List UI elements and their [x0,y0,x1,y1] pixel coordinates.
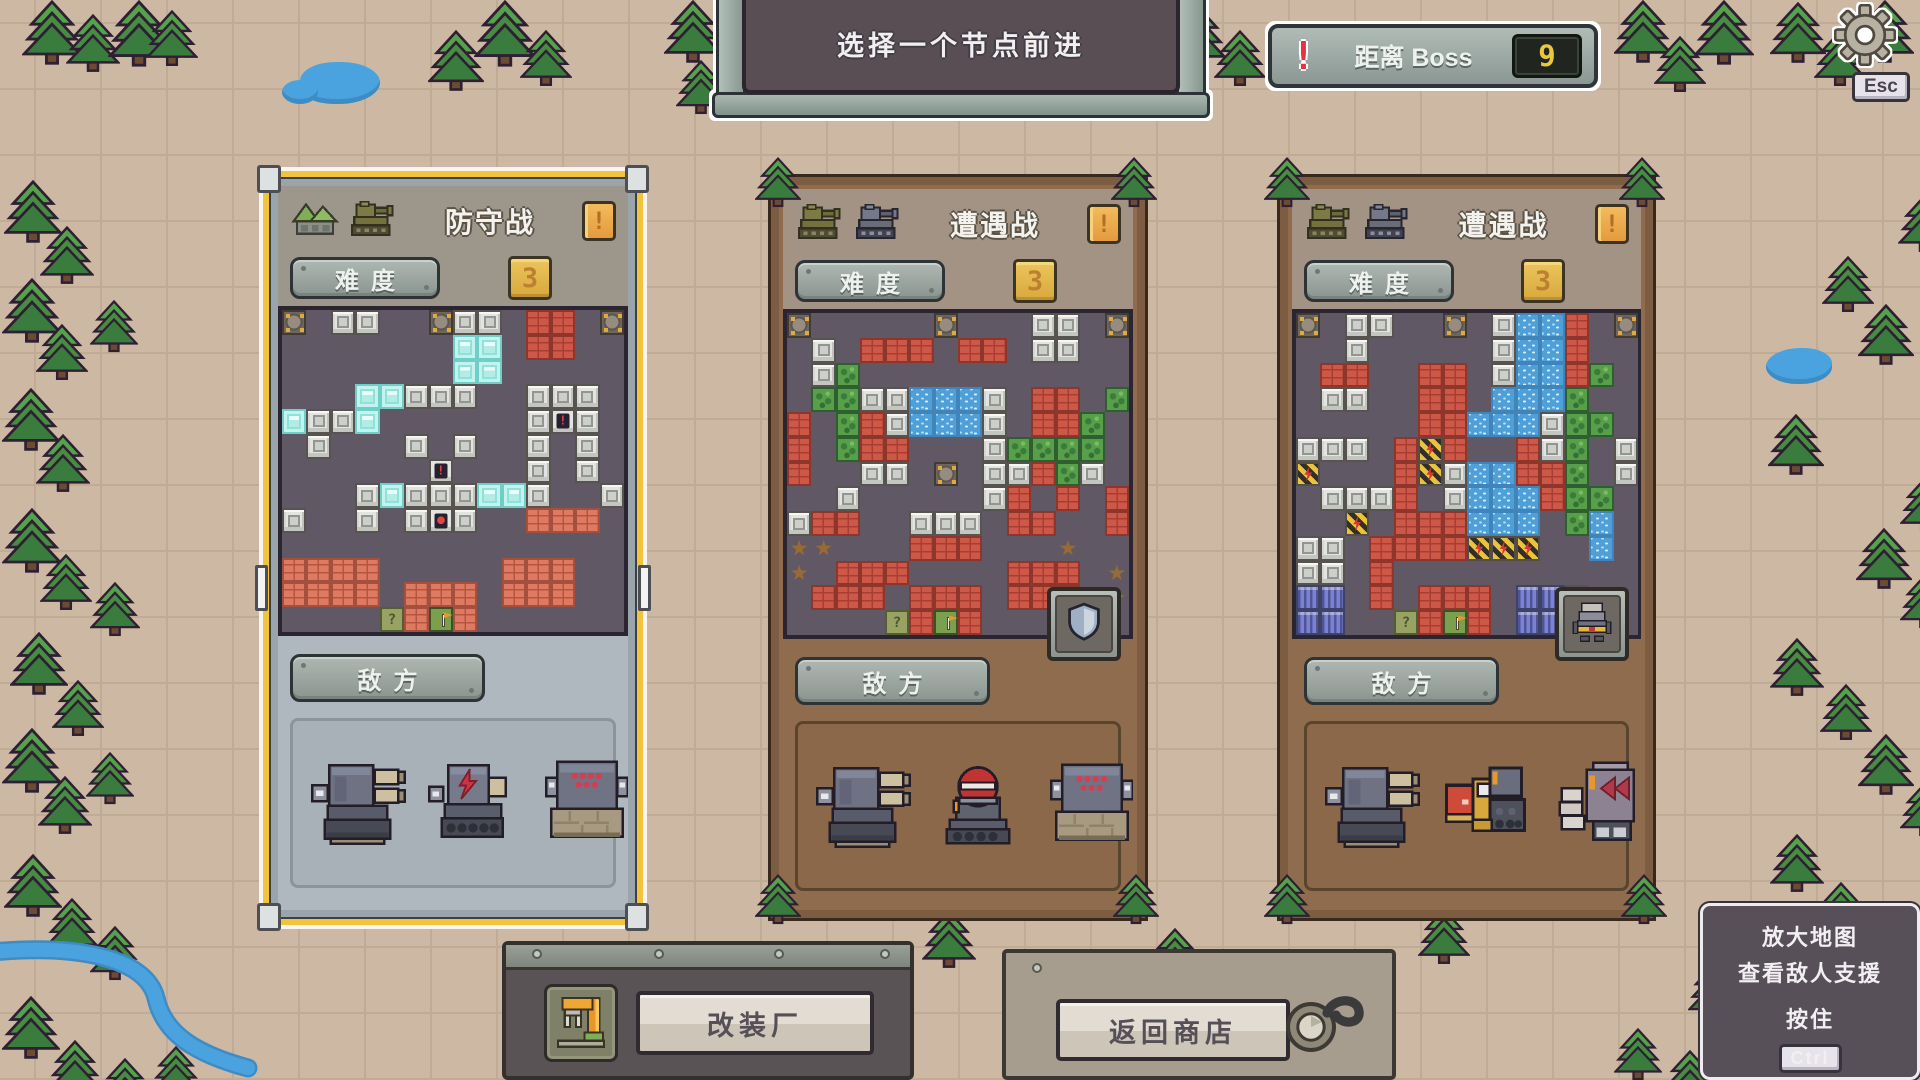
tile-metal-block [811,363,835,388]
enemy-units-panel [795,721,1121,891]
olive-tank-icon [348,200,398,243]
node-type-title: 遭遇战 [911,204,1079,244]
tile-empty [1491,561,1515,586]
tile-metal-block [1614,437,1638,462]
tile-brick [1565,338,1589,363]
tile-empty [502,434,526,459]
tile-brick [836,585,860,610]
tile-empty [282,459,306,484]
tile-anchor-corner [282,310,306,335]
tile-empty [1007,536,1031,561]
tile-empty [811,561,835,586]
tile-light-brick [453,607,477,632]
tile-empty [1369,610,1393,635]
tile-brick [526,310,550,335]
tile-empty [982,511,1006,536]
node-type-title: 遭遇战 [1420,204,1587,244]
tile-container [1320,585,1344,610]
mountain-base-icon [290,201,340,242]
tile-bush [1080,437,1104,462]
tile-empty [1007,363,1031,388]
tile-light-brick [429,582,453,607]
tile-empty [306,607,330,632]
pine-tree-icon [1770,638,1824,698]
tile-empty [909,437,933,462]
tile-metal-block [982,412,1006,437]
hint-line-1: 放大地图 [1762,920,1858,952]
tile-empty [380,558,404,583]
tile-empty [331,533,355,558]
tile-empty [477,434,501,459]
tile-water [1491,412,1515,437]
tile-spawn-flag [429,607,453,632]
tile-water [1467,486,1491,511]
corner-tab [257,903,281,931]
tile-brick [958,585,982,610]
tile-empty [551,459,575,484]
tile-brick [982,338,1006,363]
tile-light-brick [282,582,306,607]
tile-empty [1491,585,1515,610]
tile-metal-block [982,387,1006,412]
tile-loot-tile [429,508,453,533]
tile-brick [1443,536,1467,561]
enemy-assault-mech-sprite [1551,760,1641,853]
tile-empty [331,483,355,508]
tile-empty [600,582,624,607]
tile-empty [1345,536,1369,561]
tile-empty [282,533,306,558]
tile-empty [1467,363,1491,388]
tile-bush [836,387,860,412]
tile-empty [600,360,624,385]
tile-brick [1540,486,1564,511]
tile-empty [551,483,575,508]
tile-anchor-corner [1614,313,1638,338]
pine-tree-icon [755,874,801,926]
tile-empty [526,607,550,632]
tile-bush [1565,412,1589,437]
tile-empty [477,508,501,533]
tile-empty [1369,363,1393,388]
tile-empty [860,486,884,511]
factory-panel: 改装厂 [502,941,914,1080]
tile-empty [885,486,909,511]
tile-brick [836,561,860,586]
tile-metal-block [958,511,982,536]
tile-brick [958,338,982,363]
tile-metal-block [1320,561,1344,586]
tile-empty [958,363,982,388]
tile-empty [282,335,306,360]
tile-empty [331,607,355,632]
tile-empty [380,409,404,434]
tile-brick [1056,387,1080,412]
tile-brick [1418,585,1442,610]
tile-empty [909,363,933,388]
tile-metal-block [1296,561,1320,586]
tile-light-brick [551,582,575,607]
tile-empty [885,585,909,610]
tile-anchor-corner [934,462,958,487]
tile-brick [1105,486,1129,511]
tile-empty [502,607,526,632]
tile-empty [1007,338,1031,363]
tile-empty [811,610,835,635]
card-frame: 防守战 ! 难度 3 敌方 [269,177,637,919]
alert-icon: ! [1292,34,1315,78]
tile-empty [282,607,306,632]
tile-empty [1467,338,1491,363]
tile-empty [1418,313,1442,338]
tile-ice-block [453,335,477,360]
tile-spawn-flag [1443,610,1467,635]
tile-mission-tile [380,607,404,632]
tile-brick [1394,486,1418,511]
tile-empty [811,437,835,462]
card-top-section: 遭遇战 ! 难度 3 [783,189,1133,639]
tile-spike [1105,561,1129,586]
tile-empty [958,437,982,462]
tile-metal-block [811,338,835,363]
tile-electric-hazard [1467,536,1491,561]
tile-anchor-corner [1105,313,1129,338]
tile-water [934,412,958,437]
tile-empty [909,313,933,338]
tile-metal-block [282,508,306,533]
tile-spike [787,561,811,586]
tile-empty [380,335,404,360]
card-frame: 遭遇战 ! 难度 3 敌方 [779,185,1137,910]
hint-panel: 放大地图 查看敌人支援 按住 Ctrl [1700,903,1920,1080]
tile-metal-block [526,459,550,484]
tile-empty [502,360,526,385]
enemy-label: 敌方 [1304,657,1499,705]
tile-brick [526,335,550,360]
enemy-units-panel [290,718,616,888]
tile-water [1516,412,1540,437]
tile-ice-block [355,409,379,434]
tile-water [1516,511,1540,536]
pine-tree-icon [922,910,976,970]
tile-light-brick [551,558,575,583]
tile-empty [1589,313,1613,338]
enemy-lightning-tank-sprite [423,757,523,850]
tile-empty [600,384,624,409]
tile-empty [1467,313,1491,338]
tile-empty [860,363,884,388]
node-card-1[interactable]: 防守战 ! 难度 3 敌方 [263,171,643,925]
card-content: 遭遇战 ! 难度 3 敌方 [783,189,1133,906]
tile-metal-block [1369,313,1393,338]
shop-panel: 返回商店 [1002,949,1396,1080]
settings-button[interactable] [1834,4,1896,71]
tile-empty [429,533,453,558]
tile-empty [331,459,355,484]
tile-spike [787,536,811,561]
tile-water [1516,363,1540,388]
tile-empty [575,360,599,385]
tile-bush [1080,412,1104,437]
hint-line-2: 查看敌人支援 [1738,956,1882,988]
top-banner-text: 选择一个节点前进 [837,24,1085,63]
card-bottom-section: 敌方 [1292,639,1641,906]
tile-water [1491,387,1515,412]
tile-empty [282,360,306,385]
tile-brick [1031,511,1055,536]
tile-empty [429,434,453,459]
tile-empty [477,459,501,484]
tile-empty [1443,338,1467,363]
tile-metal-block [1443,462,1467,487]
tile-empty [811,462,835,487]
tile-brick [811,585,835,610]
tile-empty [982,561,1006,586]
enemy-units-panel [1304,721,1629,891]
tile-empty [429,360,453,385]
tile-empty [502,384,526,409]
tile-empty [1369,412,1393,437]
tile-electric-hazard [1516,536,1540,561]
tile-brick [1443,363,1467,388]
tile-bush [1056,462,1080,487]
tile-empty [331,508,355,533]
boss-distance-value: 9 [1512,34,1582,78]
tile-ice-block [380,384,404,409]
tile-empty [355,335,379,360]
tile-empty [331,335,355,360]
tile-metal-block [1443,486,1467,511]
power-plug-icon [1282,991,1368,1055]
tile-metal-block [404,483,428,508]
tile-metal-block [885,462,909,487]
tile-brick [551,335,575,360]
side-tab [638,565,651,611]
card-bottom-section: 敌方 [783,639,1133,906]
tile-metal-block [429,483,453,508]
tile-empty [551,434,575,459]
tile-empty [380,508,404,533]
tile-water [909,412,933,437]
pine-tree-icon [90,300,138,354]
tile-brick [1007,486,1031,511]
olive-tank-icon [1304,203,1354,246]
tile-empty [477,533,501,558]
tile-empty [575,607,599,632]
tile-metal-block [453,310,477,335]
tile-water [909,387,933,412]
tile-metal-block [551,384,575,409]
tile-empty [909,462,933,487]
tile-empty [982,536,1006,561]
tile-empty [282,434,306,459]
tile-empty [380,360,404,385]
tile-empty [502,310,526,335]
tile-empty [787,338,811,363]
tile-empty [1007,412,1031,437]
tile-water [1491,511,1515,536]
tile-empty [502,409,526,434]
tile-water [1540,313,1564,338]
tile-empty [1056,363,1080,388]
tile-metal-block [526,409,550,434]
tile-empty [526,533,550,558]
tile-brick [787,437,811,462]
tile-light-brick [331,582,355,607]
tile-brick [958,610,982,635]
card-content: 防守战 ! 难度 3 敌方 [278,186,628,910]
card-header: 遭遇战 ! [783,189,1133,253]
top-banner: 选择一个节点前进 [710,0,1212,118]
difficulty-value: 3 [508,256,552,300]
tile-bush [836,412,860,437]
tile-brick [1467,610,1491,635]
tile-empty [811,313,835,338]
tile-brick [836,511,860,536]
tile-empty [1320,511,1344,536]
tile-metal-block [1296,437,1320,462]
enemy-twin-cannon-tank-sprite [1323,760,1423,853]
tile-empty [306,310,330,335]
tile-empty [1540,536,1564,561]
tile-light-brick [282,558,306,583]
tile-brick [1467,585,1491,610]
tile-empty [355,459,379,484]
return-shop-button[interactable]: 返回商店 [1056,999,1290,1061]
tile-empty [836,338,860,363]
tile-brick [1394,511,1418,536]
pine-tree-icon [146,10,198,68]
tile-empty [380,582,404,607]
tile-water [1540,387,1564,412]
alert-badge: ! [582,201,616,241]
tile-empty [380,533,404,558]
tile-ice-block [502,483,526,508]
pine-tree-icon [1619,157,1665,209]
tile-brick [1443,437,1467,462]
tile-empty [600,558,624,583]
tile-metal-block [404,434,428,459]
tile-empty [453,558,477,583]
tile-brick [787,462,811,487]
tile-brick [1007,585,1031,610]
pine-tree-icon [90,582,140,638]
tile-brick [1369,585,1393,610]
tile-brick [1320,363,1344,388]
tile-water [1491,462,1515,487]
tile-empty [306,384,330,409]
tile-bush [1105,387,1129,412]
tile-empty [1565,536,1589,561]
factory-panel-top-bar [506,945,910,970]
tile-empty [836,536,860,561]
pine-tree-icon [38,776,92,836]
tile-empty [1369,338,1393,363]
tile-light-brick [331,558,355,583]
tile-empty [1614,412,1638,437]
tile-empty [282,384,306,409]
tile-light-brick [575,508,599,533]
tile-metal-block [1056,313,1080,338]
tile-empty [1345,462,1369,487]
tile-empty [934,486,958,511]
tile-empty [1296,387,1320,412]
tile-empty [1589,437,1613,462]
tile-brick [909,536,933,561]
tile-empty [1491,437,1515,462]
tile-brick [1418,511,1442,536]
tile-empty [477,607,501,632]
tile-metal-block [575,409,599,434]
tile-metal-block [355,483,379,508]
tile-empty [958,486,982,511]
tile-empty [1614,387,1638,412]
tile-empty [502,533,526,558]
tile-empty [477,409,501,434]
tile-metal-block [331,310,355,335]
tile-empty [1320,412,1344,437]
tile-empty [404,360,428,385]
mech-unit-icon [1569,599,1615,650]
tile-metal-block [836,486,860,511]
tile-empty [1080,313,1104,338]
tile-bush [836,437,860,462]
tile-empty [551,360,575,385]
tile-empty [860,610,884,635]
tile-empty [885,313,909,338]
node-card-2[interactable]: 遭遇战 ! 难度 3 敌方 [771,177,1145,918]
tile-empty [404,558,428,583]
tile-empty [1589,387,1613,412]
pond [1766,348,1832,384]
tile-brick [1443,412,1467,437]
difficulty-label: 难度 [1304,260,1454,302]
tile-brick [1394,536,1418,561]
tile-light-brick [526,582,550,607]
tile-empty [404,310,428,335]
tile-metal-block [575,384,599,409]
difficulty-row: 难度 3 [278,250,628,306]
tile-empty [1345,610,1369,635]
tile-anchor-corner [600,310,624,335]
tile-empty [860,313,884,338]
tile-alert-tile [551,409,575,434]
boss-distance-panel: ! 距离 Boss 9 [1268,24,1598,88]
tile-empty [958,561,982,586]
tile-empty [1080,338,1104,363]
tile-light-brick [355,558,379,583]
tile-brick [934,585,958,610]
tile-empty [1589,338,1613,363]
pine-tree-icon [755,157,801,209]
tile-empty [1080,363,1104,388]
tile-empty [1467,387,1491,412]
tile-brick [1565,313,1589,338]
tile-metal-block [575,459,599,484]
tile-mission-tile [885,610,909,635]
tile-light-brick [306,558,330,583]
node-card-3[interactable]: 遭遇战 ! 难度 3 敌方 [1280,177,1653,918]
tile-container [1516,585,1540,610]
tile-empty [1614,536,1638,561]
tile-empty [787,363,811,388]
tile-light-brick [551,508,575,533]
card-frame: 遭遇战 ! 难度 3 敌方 [1288,185,1645,910]
corner-tab [257,165,281,193]
robot-arm-icon [544,984,618,1062]
tile-empty [1394,561,1418,586]
factory-button[interactable]: 改装厂 [636,991,874,1055]
